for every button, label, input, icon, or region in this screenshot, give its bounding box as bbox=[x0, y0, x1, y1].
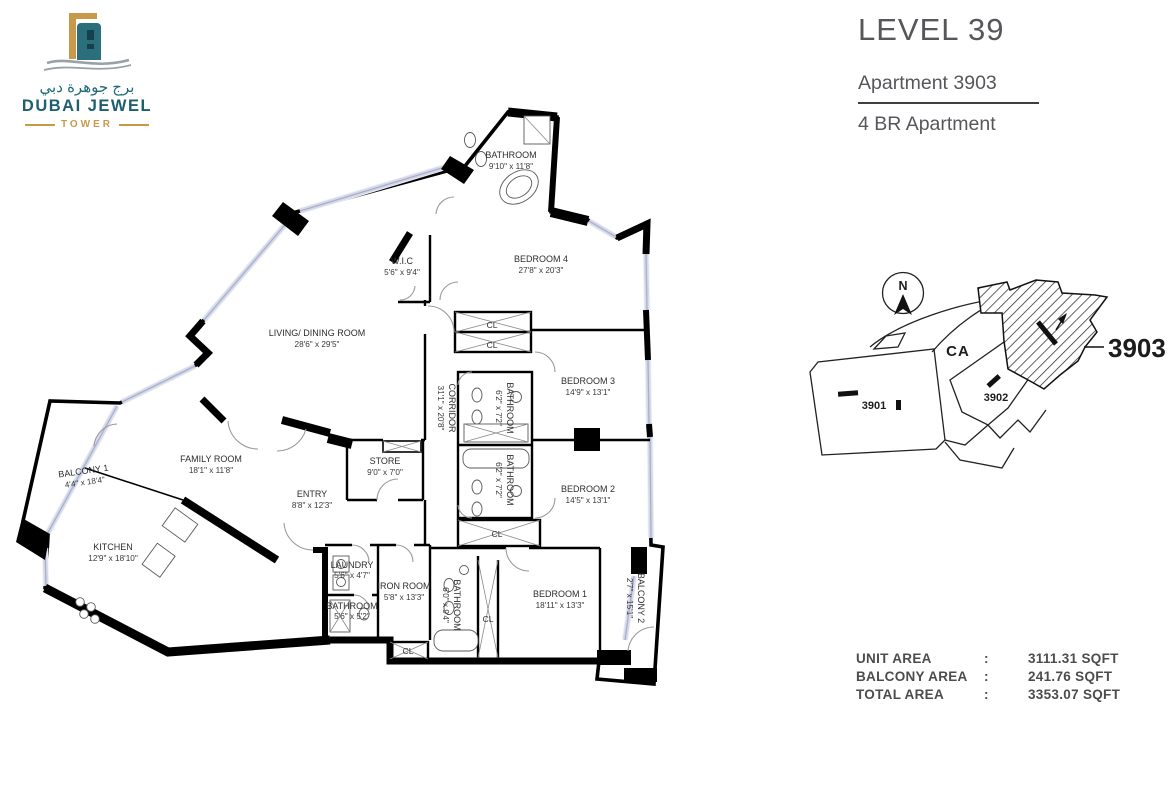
room-bedroom4: BEDROOM 4 bbox=[514, 254, 568, 264]
svg-text:9'0" x 7'0": 9'0" x 7'0" bbox=[367, 468, 403, 477]
room-bathroom-top: BATHROOM bbox=[485, 150, 536, 160]
svg-text:6'2" x 7'2": 6'2" x 7'2" bbox=[494, 390, 503, 426]
closet-label: CL bbox=[403, 646, 414, 656]
svg-text:14'9" x 13'1": 14'9" x 13'1" bbox=[566, 388, 611, 397]
area-table: UNIT AREA : 3111.31 SQFT BALCONY AREA : … bbox=[856, 650, 1120, 704]
room-wic: W.I.C bbox=[391, 256, 413, 266]
svg-text:BATHROOM: BATHROOM bbox=[452, 579, 462, 630]
svg-text:6'2" x 7'2": 6'2" x 7'2" bbox=[494, 462, 503, 498]
room-bedroom1: BEDROOM 1 bbox=[533, 589, 587, 599]
unit-3903-highlight bbox=[978, 280, 1107, 389]
unit-3901-label: 3901 bbox=[862, 400, 886, 412]
room-living-dining: LIVING/ DINING ROOM bbox=[269, 328, 366, 338]
room-entry: ENTRY bbox=[297, 489, 327, 499]
svg-text:18'11" x 13'3": 18'11" x 13'3" bbox=[536, 601, 585, 610]
svg-text:CORRIDOR: CORRIDOR bbox=[447, 384, 457, 433]
total-area-label: TOTAL AREA bbox=[856, 686, 984, 704]
svg-text:31'1" x 20'8": 31'1" x 20'8" bbox=[436, 386, 445, 431]
svg-text:5'8" x 13'3": 5'8" x 13'3" bbox=[384, 593, 424, 602]
svg-text:BALCONY 2: BALCONY 2 bbox=[636, 573, 646, 623]
room-bathroom-small: BATHROOM bbox=[326, 601, 377, 611]
room-bedroom2: BEDROOM 2 bbox=[561, 484, 615, 494]
total-area-row: TOTAL AREA : 3353.07 SQFT bbox=[856, 686, 1120, 704]
balcony-area-value: 241.76 SQFT bbox=[1028, 668, 1120, 686]
room-kitchen: KITCHEN bbox=[93, 542, 133, 552]
svg-text:9'10" x 11'8": 9'10" x 11'8" bbox=[489, 162, 533, 171]
svg-text:BATHROOM: BATHROOM bbox=[505, 382, 515, 433]
balcony-area-row: BALCONY AREA : 241.76 SQFT bbox=[856, 668, 1120, 686]
svg-text:BATHROOM: BATHROOM bbox=[505, 454, 515, 505]
unit-area-row: UNIT AREA : 3111.31 SQFT bbox=[856, 650, 1120, 668]
room-store: STORE bbox=[370, 456, 401, 466]
unit-area-value: 3111.31 SQFT bbox=[1028, 650, 1120, 668]
closet-label: CL bbox=[487, 320, 498, 330]
svg-text:8'8" x 12'3": 8'8" x 12'3" bbox=[292, 501, 332, 510]
north-label: N bbox=[898, 279, 907, 293]
svg-text:14'5" x 13'1": 14'5" x 13'1" bbox=[566, 496, 611, 505]
room-laundry: LAUNDRY bbox=[331, 560, 374, 570]
svg-text:27'8" x 20'3": 27'8" x 20'3" bbox=[519, 266, 564, 275]
room-bedroom3: BEDROOM 3 bbox=[561, 376, 615, 386]
svg-text:5'6" x 5'2": 5'6" x 5'2" bbox=[334, 612, 370, 621]
room-iron: IRON ROOM bbox=[378, 581, 431, 591]
svg-text:18'1" x 11'8": 18'1" x 11'8" bbox=[189, 466, 233, 475]
floorplan-page: برج جوهرة دبي DUBAI JEWEL TOWER LEVEL 39… bbox=[0, 0, 1170, 785]
svg-text:12'9" x 18'10": 12'9" x 18'10" bbox=[88, 554, 138, 563]
svg-text:28'6" x 29'5": 28'6" x 29'5" bbox=[295, 340, 340, 349]
closet-label: CL bbox=[487, 340, 498, 350]
balcony-area-label: BALCONY AREA bbox=[856, 668, 984, 686]
svg-text:6'0" x 9'4": 6'0" x 9'4" bbox=[441, 587, 450, 623]
total-area-value: 3353.07 SQFT bbox=[1028, 686, 1120, 704]
closet-label: CL bbox=[483, 614, 494, 624]
svg-text:5'6" x 4'7": 5'6" x 4'7" bbox=[334, 571, 370, 580]
unit-3902-label: 3902 bbox=[984, 392, 1008, 404]
key-plan: N CA 3901 3902 3903 bbox=[810, 273, 1166, 469]
unit-3903-label: 3903 bbox=[1108, 333, 1166, 363]
unit-area-label: UNIT AREA bbox=[856, 650, 984, 668]
common-area-label: CA bbox=[946, 343, 970, 360]
svg-text:5'6" x 9'4": 5'6" x 9'4" bbox=[384, 268, 420, 277]
closet-label: CL bbox=[492, 529, 503, 539]
svg-text:2'7" x 15'1": 2'7" x 15'1" bbox=[625, 578, 634, 618]
compass-icon: N bbox=[883, 273, 924, 316]
room-family: FAMILY ROOM bbox=[180, 454, 242, 464]
